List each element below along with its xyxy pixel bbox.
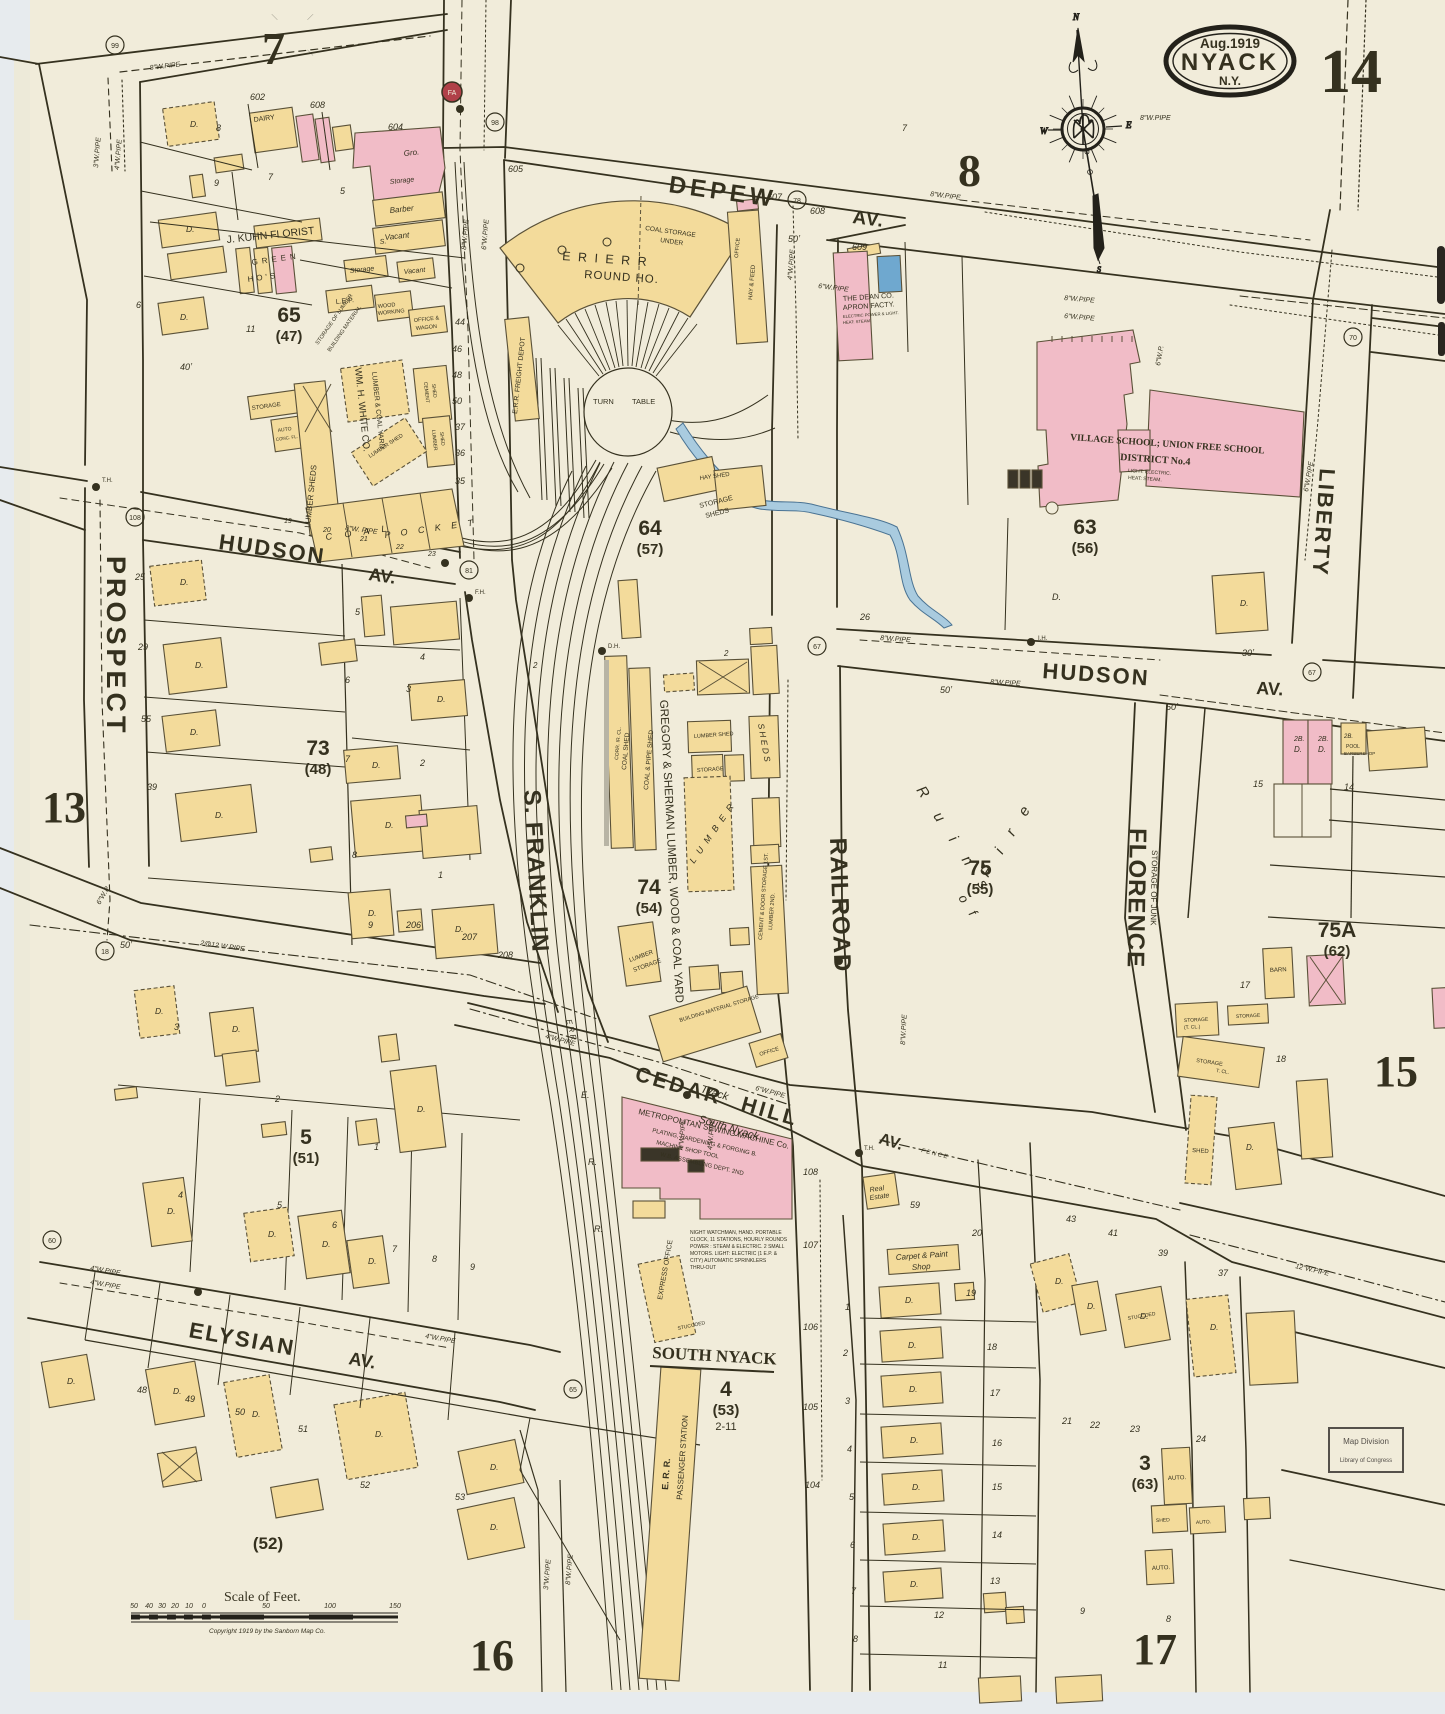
svg-text:3: 3 [845,1396,850,1406]
svg-text:D.: D. [912,1532,921,1542]
svg-text:1: 1 [374,1142,379,1152]
svg-text:(47): (47) [276,328,303,345]
svg-text:605: 605 [508,164,524,174]
svg-text:D.: D. [1055,1276,1064,1286]
svg-text:THRU-OUT: THRU-OUT [690,1265,716,1271]
svg-text:4: 4 [847,1444,852,1454]
svg-text:D.: D. [190,119,199,129]
svg-text:D.: D. [1210,1322,1219,1332]
svg-text:4: 4 [420,652,425,662]
svg-text:D.: D. [1087,1301,1096,1311]
svg-text:CITY) AUTOMATIC SPRINKLERS: CITY) AUTOMATIC SPRINKLERS [690,1258,767,1264]
svg-text:64: 64 [638,517,662,540]
svg-text:40: 40 [145,1603,153,1610]
svg-text:19: 19 [966,1288,976,1298]
svg-text:25: 25 [134,572,146,582]
svg-text:1: 1 [438,870,443,880]
svg-text:D.: D. [252,1409,261,1419]
svg-text:3: 3 [406,684,411,694]
svg-text:D.: D. [1052,592,1061,602]
svg-text:13: 13 [990,1576,1000,1586]
svg-text:8: 8 [432,1254,437,1264]
svg-text:63: 63 [1073,516,1096,539]
svg-text:S: S [1097,265,1101,274]
svg-text:50ʼ: 50ʼ [1166,702,1179,712]
svg-text:N: N [1072,12,1080,22]
svg-text:10: 10 [185,1603,193,1610]
svg-text:52: 52 [360,1480,370,1490]
svg-text:13: 13 [42,783,86,832]
svg-text:2: 2 [723,649,729,658]
svg-text:1: 1 [845,1302,850,1312]
svg-text:D.: D. [190,727,199,737]
svg-text:105: 105 [803,1402,819,1412]
svg-text:RAILROAD: RAILROAD [824,837,856,973]
svg-text:50: 50 [262,1603,270,1610]
svg-text:46: 46 [452,344,462,354]
svg-text:BARN: BARN [1270,967,1287,974]
svg-text:Shop: Shop [912,1262,932,1272]
svg-text:108: 108 [129,515,141,522]
svg-text:6: 6 [345,675,350,685]
svg-text:18: 18 [101,949,109,956]
svg-text:STORAGE OF JUNK: STORAGE OF JUNK [1149,850,1159,926]
svg-text:SHED: SHED [1156,1517,1171,1524]
svg-text:14: 14 [1320,38,1382,106]
svg-text:D.: D. [368,908,377,918]
svg-text:8: 8 [958,145,981,196]
svg-text:18: 18 [987,1342,997,1352]
svg-text:TABLE: TABLE [632,397,655,406]
svg-text:I.H.: I.H. [1038,636,1048,642]
svg-text:FA: FA [448,90,457,97]
svg-text:D.: D. [167,1206,176,1216]
svg-text:12: 12 [934,1610,944,1620]
svg-text:604: 604 [388,122,403,132]
svg-text:D.: D. [180,577,189,587]
svg-text:D.: D. [368,1256,377,1266]
svg-text:15: 15 [1374,1047,1418,1096]
svg-text:Copyright 1919 by the Sanborn: Copyright 1919 by the Sanborn Map Co. [209,1628,326,1635]
svg-text:2: 2 [419,758,425,768]
svg-text:29: 29 [137,642,148,652]
svg-text:65: 65 [277,304,301,327]
svg-text:48: 48 [137,1385,147,1395]
svg-text:4: 4 [178,1190,183,1200]
svg-text:NYACK: NYACK [1181,49,1279,76]
svg-text:D.: D. [322,1239,331,1249]
svg-text:5: 5 [300,1126,312,1149]
svg-text:D.: D. [437,694,446,704]
svg-text:44: 44 [455,317,465,327]
svg-text:AUTO.: AUTO. [1196,1519,1211,1526]
svg-text:AUTO.: AUTO. [1168,1475,1187,1482]
svg-text:9: 9 [470,1262,475,1272]
svg-text:S.: S. [379,238,386,246]
svg-text:59: 59 [910,1200,920,1210]
svg-text:NIGHT WATCHMAN, HAND. PORTABLE: NIGHT WATCHMAN, HAND. PORTABLE [690,1230,782,1236]
svg-text:78: 78 [793,198,801,205]
svg-text:D.: D. [180,312,189,322]
svg-text:43: 43 [1066,1214,1076,1224]
svg-text:6: 6 [850,1540,855,1550]
svg-text:22: 22 [1089,1420,1100,1430]
svg-text:15: 15 [992,1482,1003,1492]
svg-text:0: 0 [202,1603,206,1610]
svg-text:T.H.: T.H. [102,478,113,484]
svg-text:(48): (48) [305,761,332,778]
svg-text:21: 21 [359,536,368,543]
svg-text:Library of Congress: Library of Congress [1340,1458,1392,1464]
svg-text:23: 23 [1129,1424,1140,1434]
svg-text:75A: 75A [1318,919,1357,942]
svg-text:2: 2 [532,661,538,670]
svg-text:67: 67 [813,644,821,651]
svg-text:14: 14 [1344,782,1354,792]
svg-text:39: 39 [1158,1248,1168,1258]
svg-text:26: 26 [859,612,870,622]
svg-text:D.: D. [186,224,195,234]
svg-text:74: 74 [637,876,661,899]
svg-text:55: 55 [141,714,152,724]
svg-text:D.: D. [905,1295,914,1305]
svg-text:PROSPECT: PROSPECT [101,556,131,737]
svg-text:20: 20 [170,1603,179,1610]
svg-text:(53): (53) [713,1402,740,1419]
svg-text:2: 2 [274,1094,280,1104]
svg-text:D.: D. [1318,745,1326,754]
svg-text:D.: D. [490,1522,499,1532]
svg-text:N.Y.: N.Y. [1219,74,1241,88]
svg-text:20: 20 [322,527,331,534]
svg-text:67: 67 [1308,670,1316,677]
svg-text:50ʼ: 50ʼ [788,234,801,244]
svg-text:D.: D. [1240,598,1249,608]
svg-text:37: 37 [1218,1268,1229,1278]
svg-text:CLOCK, 11 STATIONS, HOURLY ROU: CLOCK, 11 STATIONS, HOURLY ROUNDS [690,1237,788,1243]
svg-text:Map Division: Map Division [1343,1437,1389,1446]
svg-text:(T. CL.): (T. CL.) [1184,1024,1201,1031]
svg-text:D.: D. [490,1462,499,1472]
svg-text:9: 9 [214,178,219,188]
svg-text:D.: D. [375,1429,384,1439]
svg-text:(57): (57) [637,541,664,558]
svg-text:53: 53 [455,1492,465,1502]
svg-text:D.: D. [912,1482,921,1492]
svg-text:15: 15 [1253,779,1264,789]
svg-text:9: 9 [1080,1606,1085,1616]
svg-text:TURN: TURN [593,397,614,406]
svg-text:E.: E. [581,1090,590,1100]
svg-text:50: 50 [130,1603,138,1610]
svg-text:108: 108 [803,1167,818,1177]
svg-text:(52): (52) [253,1534,283,1553]
svg-text:104: 104 [805,1480,820,1490]
svg-text:(51): (51) [293,1150,320,1167]
svg-text:19: 19 [284,518,292,525]
svg-text:609: 609 [852,242,867,252]
svg-text:8: 8 [352,850,357,860]
svg-text:30ʼ: 30ʼ [1242,648,1255,658]
svg-text:(56): (56) [1072,540,1099,557]
svg-text:39: 39 [147,782,157,792]
svg-text:18: 18 [1276,1054,1286,1064]
svg-text:608: 608 [810,206,825,216]
svg-text:4: 4 [720,1378,732,1401]
svg-text:D.: D. [173,1386,182,1396]
svg-text:MOTORS. LIGHT: ELECTRIC (1 E.P: MOTORS. LIGHT: ELECTRIC (1 E.P. & [690,1251,778,1257]
svg-text:50: 50 [452,396,462,406]
svg-text:D.: D. [215,810,224,820]
svg-text:Gro.: Gro. [403,147,419,158]
svg-text:22: 22 [395,544,404,551]
svg-text:7: 7 [262,23,285,74]
svg-text:6: 6 [136,300,141,310]
svg-text:T.H.: T.H. [864,1146,875,1152]
svg-text:BARBERSHOP: BARBERSHOP [1344,751,1375,756]
svg-text:AV.: AV. [851,207,885,232]
svg-text:D.: D. [67,1376,76,1386]
svg-text:100: 100 [324,1603,336,1610]
svg-text:208: 208 [497,950,513,960]
svg-text:30: 30 [158,1603,166,1610]
svg-text:17: 17 [1133,1625,1177,1674]
svg-text:81: 81 [465,568,473,575]
svg-text:POWER : STEAM & ELECTRIC. 2 S: POWER : STEAM & ELECTRIC. 2 SMALL [690,1244,785,1250]
svg-text:D.: D. [909,1384,918,1394]
svg-text:150: 150 [389,1603,401,1610]
svg-text:23: 23 [427,551,436,558]
svg-text:POOL: POOL [1346,744,1360,750]
svg-text:(54): (54) [636,900,663,917]
svg-text:R.: R. [588,1157,597,1167]
svg-text:(63): (63) [1132,1476,1159,1493]
svg-text:3: 3 [174,1022,179,1032]
svg-text:16: 16 [470,1631,514,1680]
svg-text:AV.: AV. [1256,678,1284,699]
svg-text:41: 41 [1108,1228,1118,1238]
svg-text:AV.: AV. [367,564,397,588]
svg-text:207: 207 [461,932,478,942]
svg-text:99: 99 [111,43,119,50]
svg-text:D.: D. [908,1340,917,1350]
svg-text:37: 37 [455,422,466,432]
svg-text:D.: D. [1294,745,1302,754]
svg-text:607: 607 [767,192,783,202]
svg-text:11: 11 [246,324,255,334]
svg-text:65: 65 [569,1387,577,1394]
svg-text:R.: R. [594,1224,603,1234]
svg-text:17: 17 [990,1388,1001,1398]
svg-text:3: 3 [1139,1452,1151,1475]
svg-text:60: 60 [48,1238,56,1245]
svg-text:11: 11 [938,1660,947,1670]
svg-text:49: 49 [185,1394,195,1404]
svg-text:FLORENCE: FLORENCE [1122,828,1151,968]
svg-text:40ʼ: 40ʼ [180,362,193,372]
svg-text:8″W.PIPE: 8″W.PIPE [1140,115,1171,122]
svg-text:35: 35 [455,476,466,486]
svg-text:2-11: 2-11 [715,1421,736,1433]
svg-text:8: 8 [1166,1614,1171,1624]
svg-text:F.H.: F.H. [475,590,486,596]
svg-text:73: 73 [306,737,329,760]
svg-text:D.: D. [372,760,381,770]
svg-text:2: 2 [842,1348,848,1358]
svg-text:206: 206 [405,920,421,930]
svg-text:2B.: 2B. [1343,734,1353,740]
svg-text:16: 16 [992,1438,1002,1448]
svg-text:8: 8 [853,1634,858,1644]
svg-text:2B.: 2B. [1317,736,1329,743]
svg-text:D.: D. [417,1104,426,1114]
svg-text:D.: D. [910,1435,919,1445]
svg-text:106: 106 [803,1322,818,1332]
svg-text:50: 50 [235,1407,245,1417]
svg-text:D.: D. [195,660,204,670]
svg-text:D.: D. [155,1006,164,1016]
svg-text:6: 6 [332,1220,337,1230]
svg-text:SHED: SHED [1192,1148,1210,1155]
svg-text:20: 20 [971,1228,982,1238]
svg-text:50ʼ: 50ʼ [940,685,953,695]
svg-text:D.: D. [1246,1143,1254,1152]
svg-text:D.H.: D.H. [608,644,620,650]
svg-text:107: 107 [803,1240,819,1250]
svg-text:51: 51 [298,1424,308,1434]
svg-text:21: 21 [1061,1416,1072,1426]
svg-text:8: 8 [216,123,221,133]
svg-text:9: 9 [368,920,373,930]
svg-text:E: E [1125,120,1132,130]
svg-text:2B.: 2B. [1293,736,1305,743]
svg-text:D.: D. [385,820,394,830]
svg-text:602: 602 [250,92,265,102]
svg-text:D.: D. [232,1024,241,1034]
svg-text:48: 48 [452,370,462,380]
svg-text:98: 98 [491,120,499,127]
svg-text:36: 36 [455,448,465,458]
svg-text:AUTO.: AUTO. [1152,1565,1171,1572]
svg-text:14: 14 [992,1530,1002,1540]
svg-text:D.: D. [910,1579,919,1589]
svg-text:50ʼ: 50ʼ [120,940,133,950]
svg-text:D.: D. [268,1229,277,1239]
svg-text:608: 608 [310,100,325,110]
svg-text:24: 24 [1195,1434,1206,1444]
svg-text:17: 17 [1240,980,1251,990]
svg-text:(62): (62) [1324,943,1351,960]
svg-text:70: 70 [1349,335,1357,342]
